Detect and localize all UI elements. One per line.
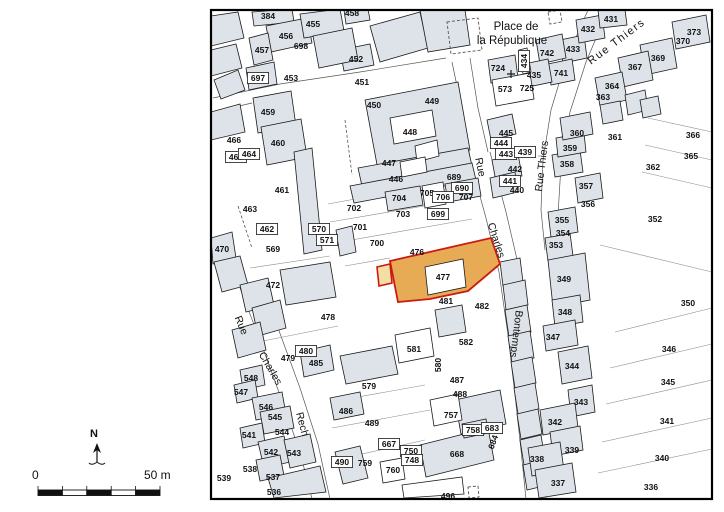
parcel-label: 689	[447, 172, 461, 182]
parcel-label: 545	[268, 412, 282, 422]
street-name-label: la République	[477, 35, 547, 47]
parcel-label: 490	[335, 457, 349, 467]
parcel-label: 433	[566, 44, 580, 54]
parcel-label: 464	[242, 149, 256, 159]
parcel-label: 724	[491, 63, 505, 73]
parcel-label: 757	[444, 410, 458, 420]
parcel-label: 581	[407, 344, 421, 354]
parcel-label: 456	[279, 31, 293, 41]
building-shape	[280, 262, 336, 305]
parcel-label: 667	[382, 439, 396, 449]
parcel-label: 466	[227, 135, 241, 145]
parcel-label: 461	[275, 185, 289, 195]
parcel-label: 457	[255, 45, 269, 55]
parcel-label: 339	[565, 445, 579, 455]
parcel-label: 431	[604, 14, 618, 24]
parcel-label: 542	[264, 447, 278, 457]
parcel-label: 337	[551, 478, 565, 488]
parcel-label: 569	[266, 244, 280, 254]
parcel-label: 470	[215, 244, 229, 254]
parcel-label: 477	[436, 272, 450, 282]
parcel-label: 338	[530, 454, 544, 464]
parcel-label: 478	[321, 312, 335, 322]
parcel-label: 448	[403, 127, 417, 137]
parcel-label: 758	[466, 425, 480, 435]
scale-bar-segment	[111, 490, 135, 496]
parcel-label: 451	[355, 77, 369, 87]
highlight-parcel-notch	[377, 264, 392, 286]
parcel-label: 699	[431, 209, 445, 219]
parcel-label: 364	[605, 81, 619, 91]
parcel-label: 537	[266, 472, 280, 482]
parcel-label: 350	[681, 298, 695, 308]
parcel-label: 700	[370, 238, 384, 248]
parcel-label: 472	[266, 280, 280, 290]
parcel-label: 360	[570, 128, 584, 138]
parcel-label: 349	[557, 274, 571, 284]
building-shape	[420, 10, 470, 52]
parcel-label: 355	[555, 215, 569, 225]
parcel-label: 369	[651, 53, 665, 63]
parcel-label: 702	[347, 203, 361, 213]
parcel-label: 435	[527, 70, 541, 80]
parcel-label: 539	[217, 473, 231, 483]
parcel-label: 476	[410, 247, 424, 257]
scale-start-label: 0	[32, 468, 39, 482]
parcel-label: 359	[563, 143, 577, 153]
parcel-label: 446	[389, 174, 403, 184]
parcel-label: 571	[320, 235, 334, 245]
north-label: N	[90, 428, 98, 440]
parcel-label: 367	[628, 62, 642, 72]
parcel-label: 570	[312, 224, 326, 234]
parcel-label: 453	[284, 73, 298, 83]
parcel-label: 449	[425, 96, 439, 106]
cadastral-map-page: 3844564554584576984526974534514594504494…	[0, 0, 724, 512]
building-shape	[435, 305, 466, 337]
parcel-label: 479	[281, 353, 295, 363]
parcel-label: 486	[339, 406, 353, 416]
scale-end-label: 50 m	[144, 468, 171, 482]
parcel-label: 352	[648, 214, 662, 224]
parcel-label: 434	[519, 54, 529, 68]
parcel-label: 489	[365, 418, 379, 428]
parcel-label: 366	[686, 130, 700, 140]
parcel-label: 548	[244, 373, 258, 383]
parcel-label: 741	[554, 68, 568, 78]
parcel-label: 698	[294, 41, 308, 51]
parcel-label: 488	[453, 389, 467, 399]
parcel-label: 460	[271, 138, 285, 148]
parcel-label: 760	[386, 465, 400, 475]
parcel-label: 341	[660, 416, 674, 426]
parcel-label: 452	[349, 54, 363, 64]
parcel-label: 343	[574, 397, 588, 407]
parcel-label: 579	[362, 381, 376, 391]
parcel-label: 363	[596, 92, 610, 102]
parcel-label: 340	[655, 453, 669, 463]
parcel-label: 482	[475, 301, 489, 311]
parcel-label: 455	[306, 19, 320, 29]
parcel-label: 668	[450, 449, 464, 459]
parcel-label: 459	[261, 107, 275, 117]
parcel-label: 683	[485, 423, 499, 433]
parcel-label: 704	[392, 193, 406, 203]
parcel-label: 480	[299, 346, 313, 356]
parcel-label: 462	[260, 224, 274, 234]
parcel-label: 541	[242, 430, 256, 440]
parcel-label: 573	[498, 84, 512, 94]
parcel-label: 742	[540, 48, 554, 58]
parcel-label: 440	[510, 185, 524, 195]
parcel-label: 538	[243, 464, 257, 474]
parcel-label: 354	[556, 228, 570, 238]
scale-bar-segment	[62, 490, 86, 496]
parcel-label: 439	[518, 147, 532, 157]
north-arrow-flourish	[89, 462, 105, 464]
parcel-label: 344	[565, 361, 579, 371]
parcel-label: 485	[309, 358, 323, 368]
parcel-label: 544	[275, 427, 289, 437]
parcel-label: 701	[353, 222, 367, 232]
parcel-label: 361	[608, 132, 622, 142]
parcel-label: 707	[459, 192, 473, 202]
building-shape	[600, 101, 623, 124]
map-canvas[interactable]: 3844564554584576984526974534514594504494…	[0, 0, 724, 512]
parcel-label: 358	[560, 159, 574, 169]
scale-bar-segment	[87, 490, 111, 496]
parcel-label: 357	[579, 181, 593, 191]
parcel-label: 345	[661, 377, 675, 387]
parcel-label: 347	[546, 332, 560, 342]
parcel-label: 346	[662, 344, 676, 354]
parcel-label: 356	[581, 199, 595, 209]
parcel-label: 447	[382, 158, 396, 168]
parcel-label: 536	[267, 487, 281, 497]
parcel-label: 342	[548, 417, 562, 427]
parcel-label: 582	[459, 337, 473, 347]
parcel-label: 443	[499, 149, 513, 159]
parcel-label: 348	[558, 307, 572, 317]
parcel-label: 487	[450, 375, 464, 385]
parcel-label: 365	[684, 151, 698, 161]
parcel-label: 543	[287, 448, 301, 458]
parcel-label: 697	[251, 73, 265, 83]
parcel-label: 362	[646, 162, 660, 172]
street-name-label: Place de	[494, 21, 539, 33]
parcel-label: 370	[676, 36, 690, 46]
building-shape	[517, 409, 542, 439]
parcel-label: 432	[581, 24, 595, 34]
parcel-label: 725	[520, 83, 534, 93]
parcel-label: 445	[499, 128, 513, 138]
parcel-label: 759	[358, 458, 372, 468]
building-shape	[640, 96, 661, 118]
parcel-label: 580	[433, 358, 443, 372]
parcel-label: 384	[261, 11, 275, 21]
parcel-label: 547	[234, 387, 248, 397]
parcel-label: 703	[396, 209, 410, 219]
parcel-label: 444	[494, 138, 508, 148]
parcel-label: 546	[259, 402, 273, 412]
parcel-label: 353	[549, 240, 563, 250]
parcel-label: 450	[367, 100, 381, 110]
parcel-label: 463	[243, 204, 257, 214]
parcel-label: 706	[436, 192, 450, 202]
scale-bar-segment	[38, 490, 62, 496]
parcel-label: 442	[508, 164, 522, 174]
parcel-label: 748	[405, 455, 419, 465]
scale-bar-segment	[136, 490, 160, 496]
parcel-label: 481	[439, 296, 453, 306]
parcel-label: 336	[644, 482, 658, 492]
